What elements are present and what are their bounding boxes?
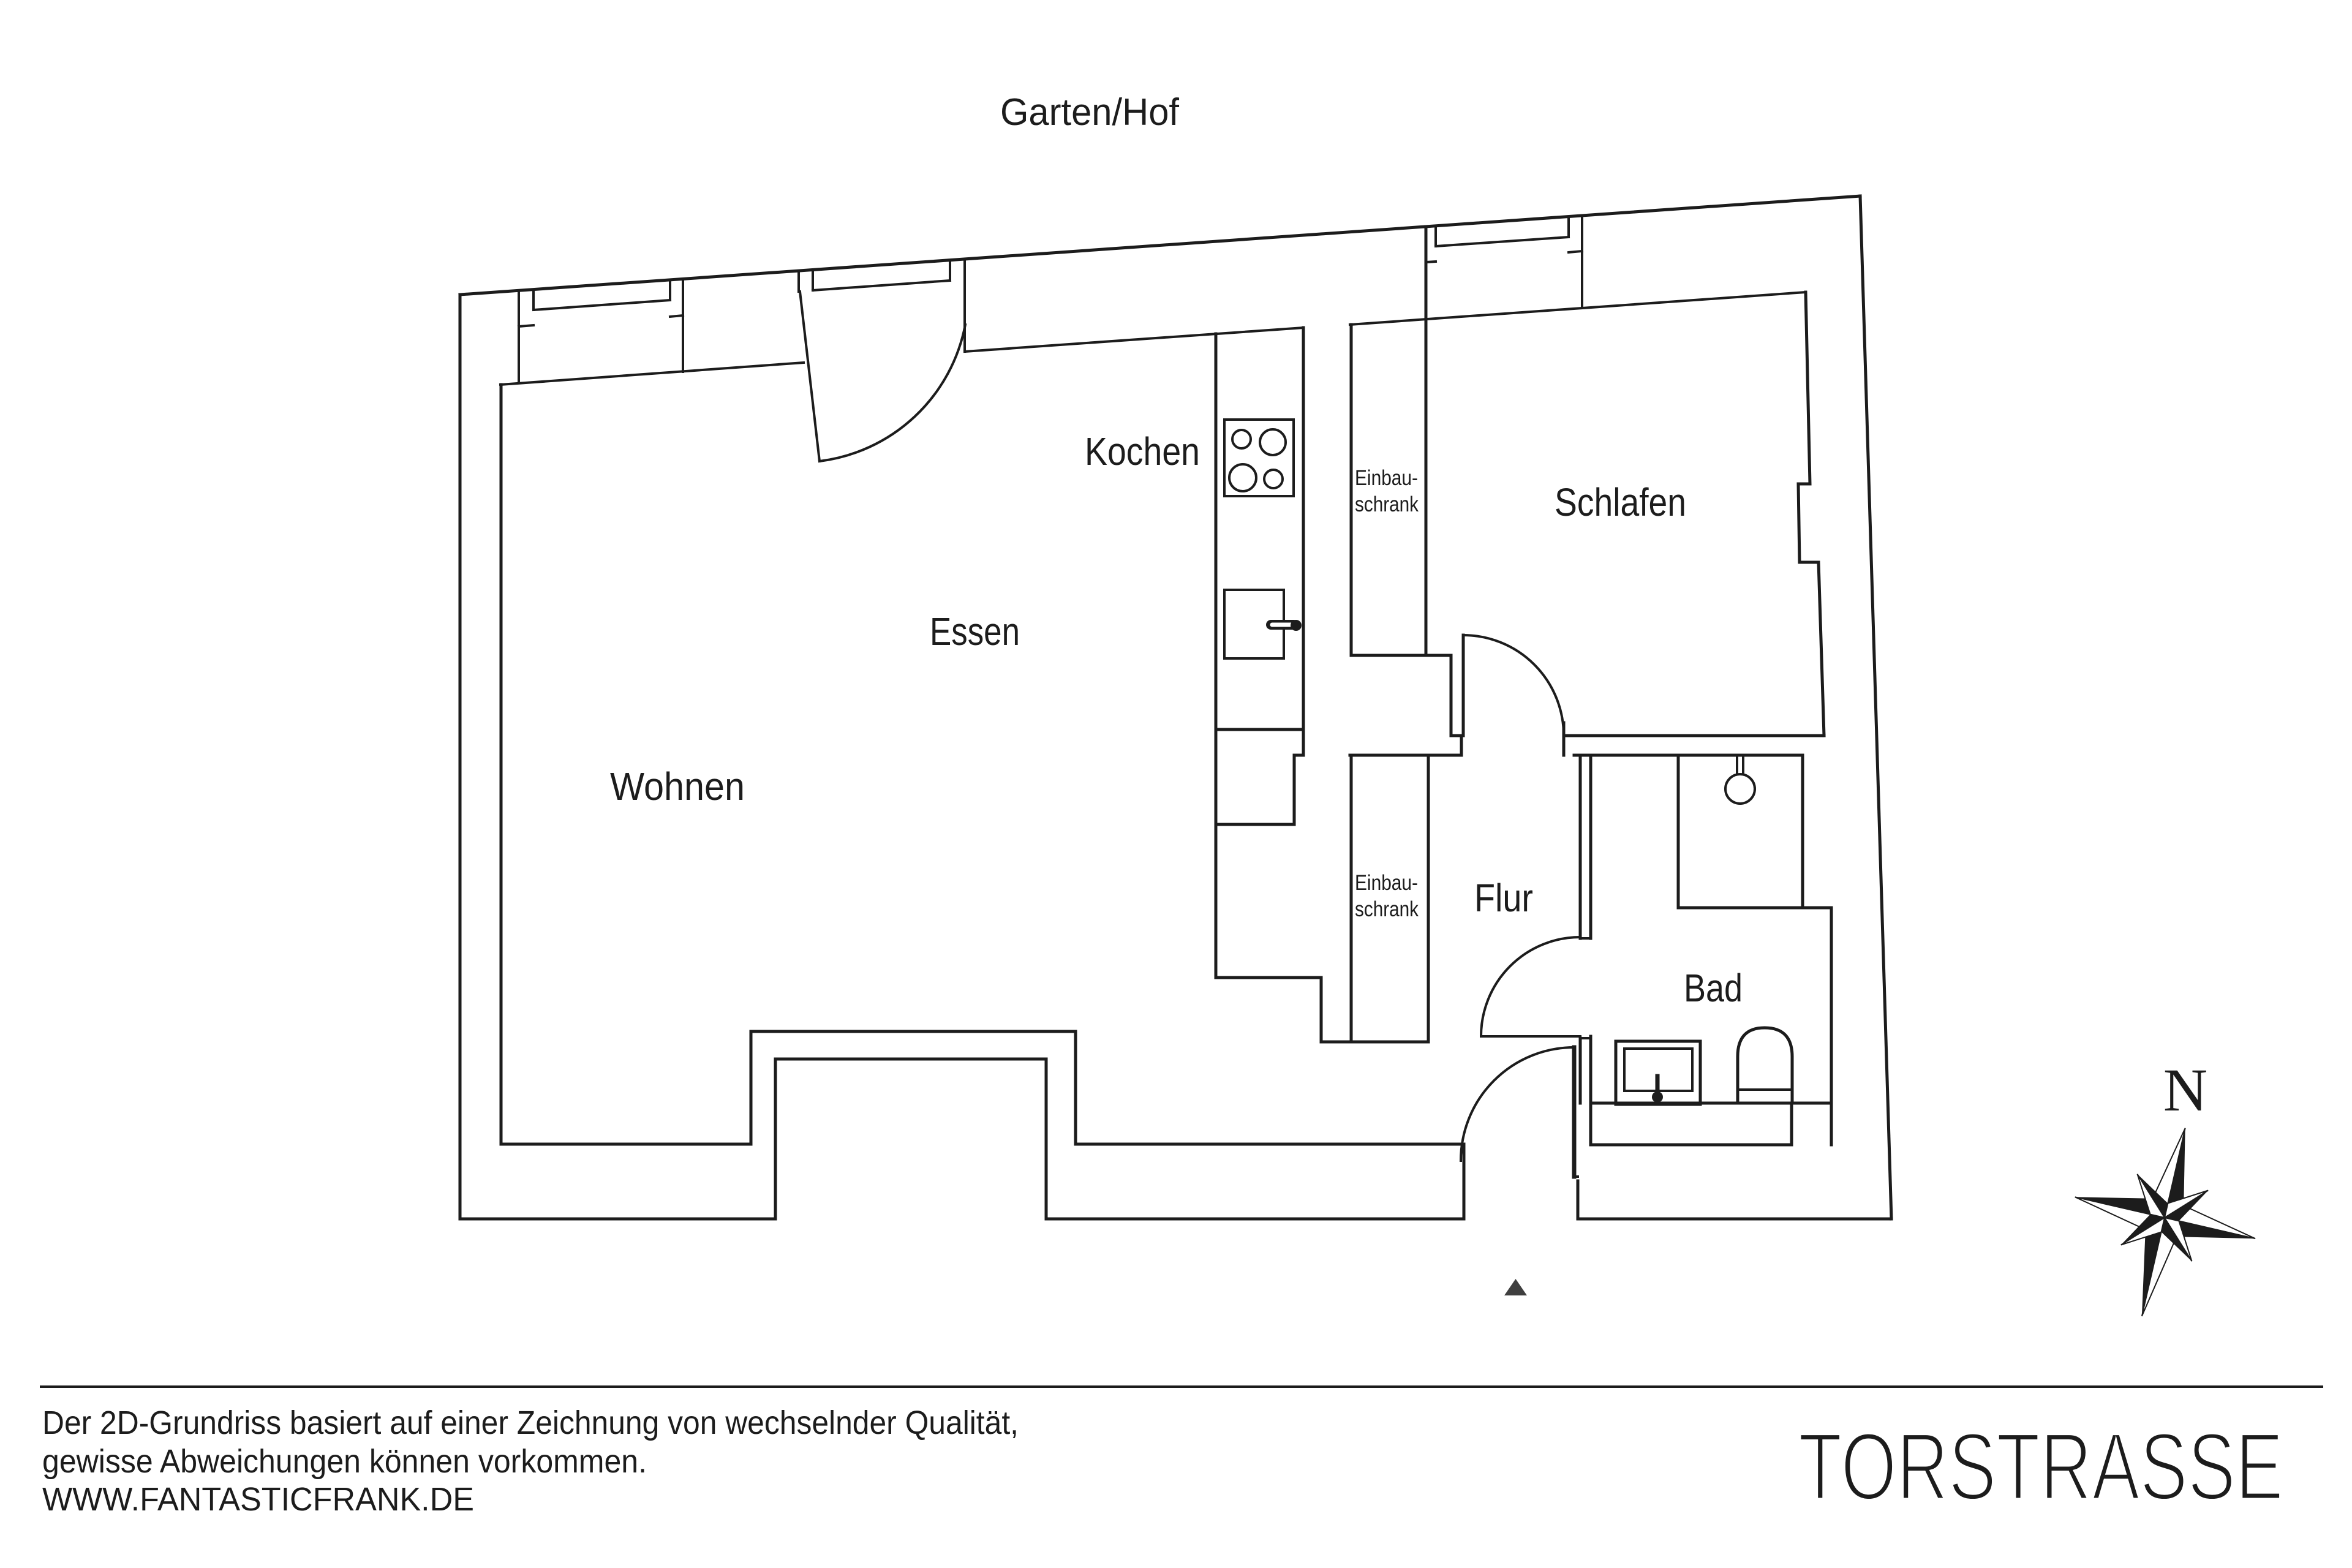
svg-text:Wohnen: Wohnen xyxy=(610,764,745,809)
svg-text:Schlafen: Schlafen xyxy=(1555,480,1686,524)
svg-text:TORSTRASSE: TORSTRASSE xyxy=(1798,1414,2283,1520)
svg-text:schrank: schrank xyxy=(1355,492,1419,516)
svg-text:Einbau-: Einbau- xyxy=(1355,871,1418,895)
svg-text:Kochen: Kochen xyxy=(1085,429,1200,473)
svg-text:Bad: Bad xyxy=(1684,966,1743,1010)
svg-text:N: N xyxy=(2163,1056,2207,1124)
svg-text:gewisse Abweichungen können vo: gewisse Abweichungen können vorkommen. xyxy=(42,1443,647,1480)
svg-text:Einbau-: Einbau- xyxy=(1355,466,1418,490)
svg-text:schrank: schrank xyxy=(1355,897,1419,921)
svg-text:Essen: Essen xyxy=(930,609,1020,654)
svg-text:Flur: Flur xyxy=(1474,876,1533,920)
svg-text:WWW.FANTASTICFRANK.DE: WWW.FANTASTICFRANK.DE xyxy=(42,1481,474,1518)
svg-text:Garten/Hof: Garten/Hof xyxy=(1000,91,1180,134)
svg-text:Der 2D-Grundriss basiert auf e: Der 2D-Grundriss basiert auf einer Zeich… xyxy=(42,1404,1019,1441)
